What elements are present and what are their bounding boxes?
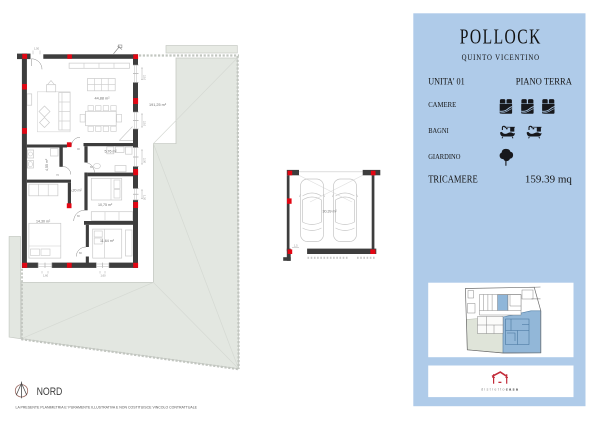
svg-text:POLLOCK: POLLOCK	[460, 24, 542, 48]
svg-text:UNITA' 01: UNITA' 01	[428, 77, 465, 87]
svg-text:6,20 m²: 6,20 m²	[70, 189, 83, 193]
svg-text:2,10: 2,10	[143, 121, 147, 127]
svg-text:10,75 m²: 10,75 m²	[98, 203, 113, 207]
svg-text:CAMERE: CAMERE	[428, 100, 456, 109]
svg-text:QUINTO VICENTINO: QUINTO VICENTINO	[462, 53, 540, 62]
svg-text:90: 90	[77, 147, 80, 151]
svg-text:14,30 m²: 14,30 m²	[36, 220, 51, 224]
svg-text:2,10: 2,10	[143, 75, 147, 81]
svg-text:1,20: 1,20	[143, 195, 147, 201]
svg-text:159.39 mq: 159.39 mq	[525, 175, 573, 186]
svg-text:5,76 m²: 5,76 m²	[105, 149, 118, 153]
svg-text:1,60: 1,60	[101, 274, 107, 278]
svg-text:distrettocasa: distrettocasa	[481, 388, 519, 392]
svg-text:70: 70	[56, 173, 59, 177]
svg-text:BAGNI: BAGNI	[428, 126, 449, 135]
svg-text:GIARDINO: GIARDINO	[428, 152, 461, 161]
svg-text:80: 80	[77, 214, 80, 218]
svg-text:44,88 m²: 44,88 m²	[95, 97, 111, 101]
svg-text:2,30: 2,30	[143, 158, 147, 164]
svg-text:30,39 m²: 30,39 m²	[323, 210, 338, 214]
svg-text:1,50: 1,50	[34, 47, 40, 51]
svg-text:191,25 m²: 191,25 m²	[149, 103, 167, 107]
svg-text:4,55 m²: 4,55 m²	[45, 158, 49, 171]
svg-text:TRICAMERE: TRICAMERE	[428, 175, 478, 186]
svg-text:PIANO TERRA: PIANO TERRA	[516, 77, 573, 87]
svg-text:1,60: 1,60	[43, 274, 49, 278]
svg-text:1,5: 1,5	[294, 244, 298, 248]
svg-text:NORD: NORD	[37, 386, 63, 398]
svg-text:11,64 m²: 11,64 m²	[100, 239, 115, 243]
svg-text:LA PRESENTE PLANIMETRIA E' PUR: LA PRESENTE PLANIMETRIA E' PURAMENTE ILL…	[16, 406, 198, 410]
svg-text:80: 80	[79, 251, 82, 255]
